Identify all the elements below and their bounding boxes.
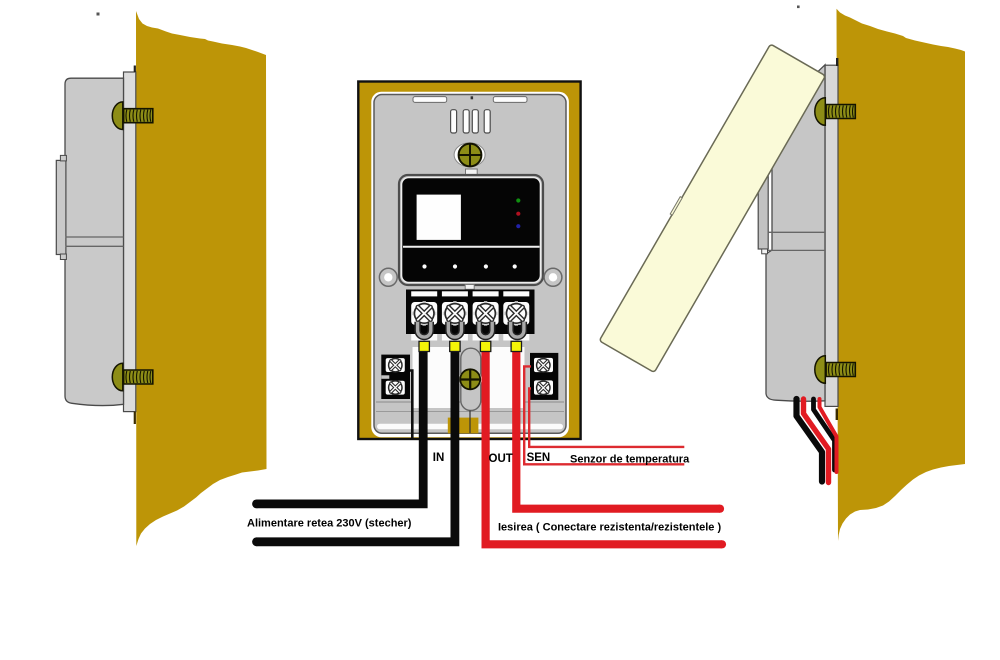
svg-text:Alimentare retea 230V (stecher: Alimentare retea 230V (stecher) [247, 518, 412, 530]
svg-text:Iesirea ( Conectare rezistenta: Iesirea ( Conectare rezistenta/rezistent… [498, 522, 721, 534]
svg-text:IN: IN [433, 452, 445, 464]
svg-text:Senzor de temperatura: Senzor de temperatura [570, 454, 690, 466]
svg-text:SEN: SEN [527, 452, 551, 464]
svg-text:OUT: OUT [489, 453, 513, 465]
